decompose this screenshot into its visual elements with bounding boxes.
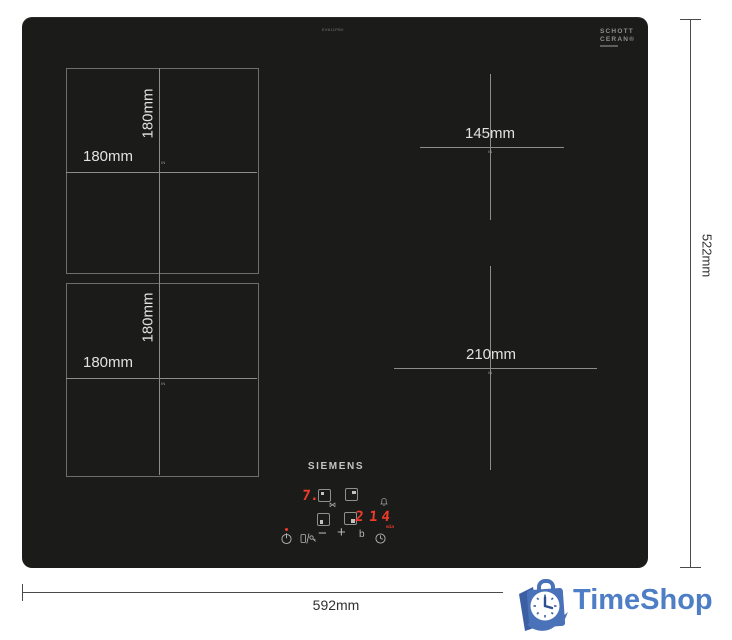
timeshop-bag-clock-icon [512,574,574,636]
product-dimension-image: EX611PB0 SCHOTT CERAN® 180mm 180mm IN 18… [0,0,732,640]
power-led-indicator [285,528,288,531]
bridge-zones-icon: ⋈ [329,501,336,509]
zone-select-back-right-key [345,488,358,501]
height-dimension-bottom-tick [680,567,701,568]
zone-front-left-horizontal-centerline [66,378,257,379]
power-level-display-right: 2 [354,509,364,525]
height-dimension-label: 522mm [700,226,715,286]
zone-front-right-diameter-label: 210mm [456,346,526,363]
zone-back-right-in-mark: IN [488,149,493,154]
width-dimension-left-tick [22,584,23,601]
zone-back-left-outline [66,68,259,274]
minus-key: − [318,525,327,542]
zone-select-front-left-indicator [320,520,324,524]
boost-key: b [359,529,365,540]
zone-front-left-in-mark: IN [161,381,166,386]
schott-logo-line2: CERAN® [600,36,635,44]
zone-back-right-diameter-label: 145mm [455,125,525,142]
hob-surface: EX611PB0 SCHOTT CERAN® 180mm 180mm IN 18… [22,17,648,568]
width-dimension-label: 592mm [300,597,372,613]
schott-ceran-logo: SCHOTT CERAN® [600,28,635,47]
zone-back-left-height-label: 180mm [140,79,157,149]
zone-back-left-in-mark: IN [161,160,166,165]
zone-front-right-vertical-line [490,266,491,470]
zone-back-left-width-label: 180mm [73,148,143,165]
zone-front-left-height-label: 180mm [140,283,157,353]
model-number-text: EX611PB0 [322,27,344,32]
timer-display: 14 [368,509,395,525]
timer-unit-label: min [386,525,394,530]
zone-select-back-right-indicator [352,491,356,495]
alarm-bell-icon [378,496,390,508]
zone-front-right-in-mark: IN [488,370,493,375]
height-dimension-top-tick [680,19,701,20]
left-zones-vertical-centerline [159,68,160,475]
power-level-display: 7. [301,488,320,504]
zone-front-right-horizontal-line [394,368,597,369]
zone-select-back-left-indicator [321,492,325,496]
schott-logo-rule [600,45,618,47]
zone-front-left-outline [66,283,259,477]
zone-front-left-width-label: 180mm [73,354,143,371]
siemens-logo: SIEMENS [291,461,381,472]
timer-clock-icon [374,532,387,545]
power-icon [280,532,293,545]
plus-key: + [337,524,346,541]
zone-back-right-horizontal-line [420,147,564,148]
timeshop-logo-text: TimeShop [573,584,713,617]
zone-back-right-vertical-line [490,74,491,220]
child-lock-key-icon [300,532,317,545]
zone-back-left-horizontal-centerline [66,172,257,173]
height-dimension-line [690,20,691,568]
schott-logo-line1: SCHOTT [600,28,635,36]
